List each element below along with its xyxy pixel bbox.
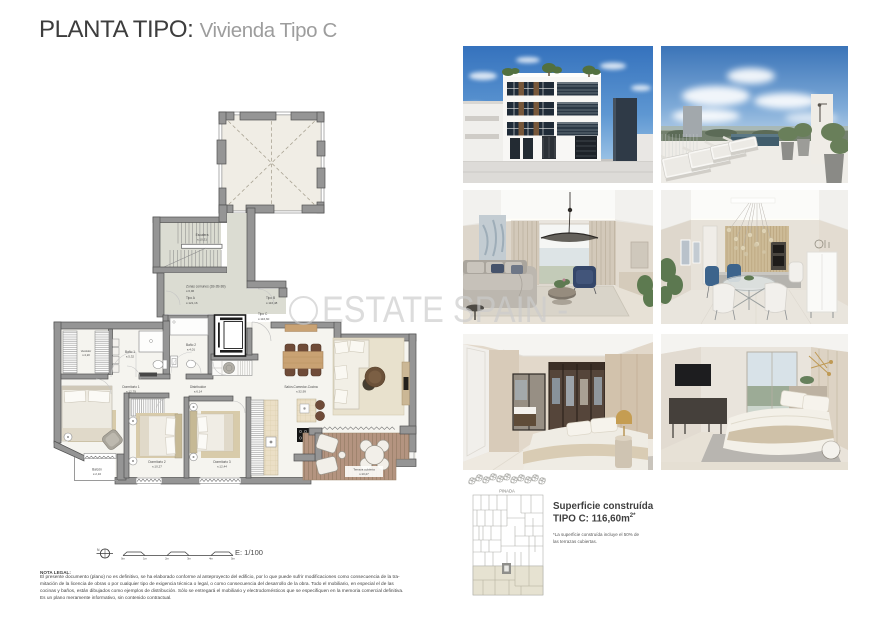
svg-text:s:5,32: s:5,32 — [126, 355, 135, 359]
svg-text:Dormitorio 2: Dormitorio 2 — [148, 460, 166, 464]
svg-text:N: N — [97, 548, 100, 552]
svg-text:s:121,16: s:121,16 — [186, 301, 198, 305]
svg-text:Balcón: Balcón — [92, 468, 102, 472]
svg-text:Dormitorio 1: Dormitorio 1 — [122, 385, 140, 389]
svg-text:s:2,16: s:2,16 — [93, 472, 102, 476]
svg-text:s:116,60: s:116,60 — [258, 317, 270, 321]
svg-text:Zonas comunes (1B-2B-3B): Zonas comunes (1B-2B-3B) — [186, 285, 226, 289]
svg-text:Baño 1: Baño 1 — [125, 350, 135, 354]
svg-text:Baño 2: Baño 2 — [186, 343, 196, 347]
svg-text:s:10,27: s:10,27 — [152, 465, 162, 469]
svg-text:Tipo A: Tipo A — [186, 296, 196, 300]
svg-text:s:12,79: s:12,79 — [126, 390, 136, 394]
svg-text:2m: 2m — [165, 557, 169, 561]
svg-text:Dormitorio 3: Dormitorio 3 — [213, 460, 231, 464]
svg-text:s:32,99: s:32,99 — [296, 390, 306, 394]
svg-text:Tipo C: Tipo C — [258, 312, 268, 316]
svg-text:s:4,01: s:4,01 — [187, 348, 196, 352]
svg-text:s:6,14: s:6,14 — [194, 390, 203, 394]
svg-text:s:10,31: s:10,31 — [197, 238, 207, 242]
svg-text:4m: 4m — [209, 557, 213, 561]
svg-text:5m: 5m — [231, 557, 235, 561]
svg-text:1m: 1m — [143, 557, 147, 561]
svg-text:Terraza cubierta: Terraza cubierta — [353, 468, 375, 472]
svg-text:3m: 3m — [187, 557, 191, 561]
svg-text:Distribuidor: Distribuidor — [190, 385, 207, 389]
svg-text:Tipo B: Tipo B — [266, 296, 275, 300]
svg-text:s:116,48: s:116,48 — [266, 301, 278, 305]
svg-text:s:10,27: s:10,27 — [359, 472, 369, 476]
svg-text:PINADA: PINADA — [499, 489, 515, 494]
svg-text:s:12,44: s:12,44 — [217, 465, 227, 469]
svg-text:s:6,96: s:6,96 — [186, 289, 195, 293]
svg-text:Salón-Comedor-Cocina: Salón-Comedor-Cocina — [284, 385, 318, 389]
svg-text:Escalera: Escalera — [196, 233, 209, 237]
svg-text:0m: 0m — [121, 557, 125, 561]
svg-text:s:4,20: s:4,20 — [82, 353, 90, 357]
